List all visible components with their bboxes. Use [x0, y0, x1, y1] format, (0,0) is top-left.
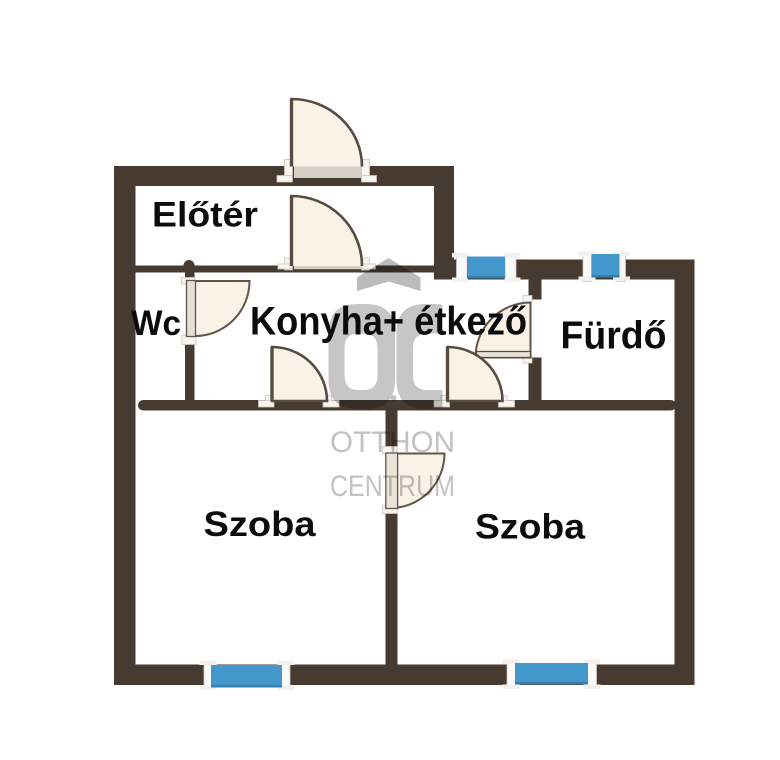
svg-text:Wc: Wc [131, 304, 181, 343]
svg-text:OTTHON: OTTHON [330, 426, 455, 459]
svg-text:Szoba: Szoba [204, 505, 317, 544]
svg-text:Konyha+ étkező: Konyha+ étkező [250, 300, 527, 344]
svg-text:Szoba: Szoba [475, 507, 585, 547]
svg-text:CENTRUM: CENTRUM [330, 470, 455, 503]
svg-text:Fürdő: Fürdő [561, 315, 667, 358]
svg-text:Előtér: Előtér [152, 196, 258, 235]
